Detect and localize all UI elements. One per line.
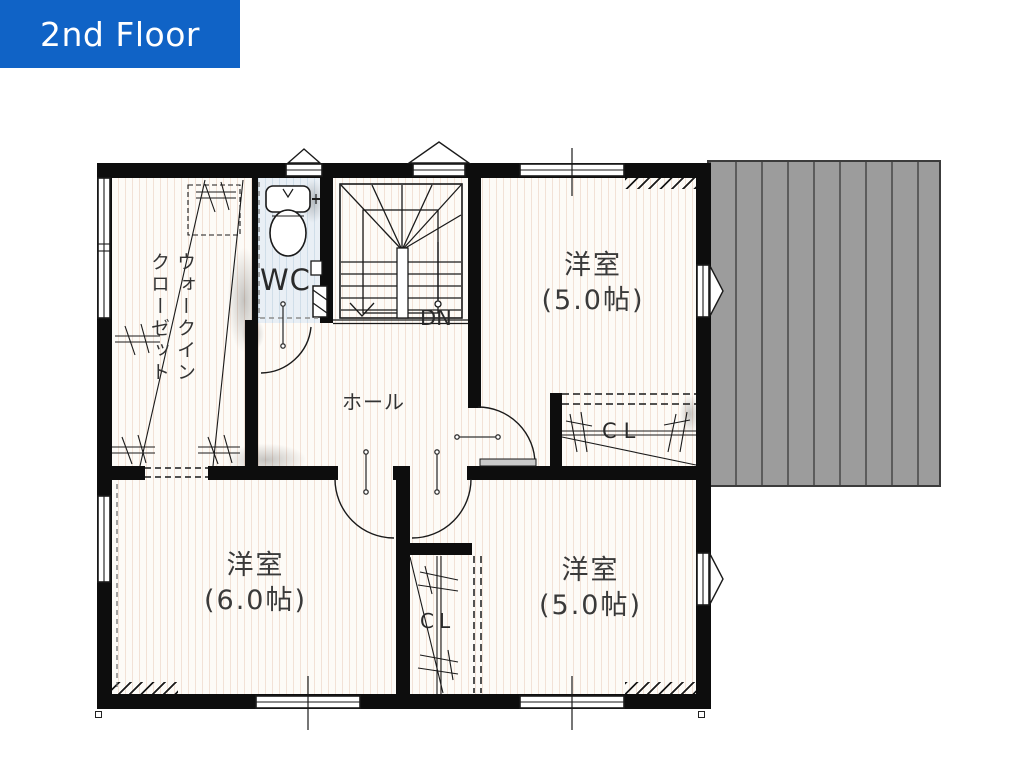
wall-segment xyxy=(245,320,258,480)
corner-marker xyxy=(95,711,102,718)
wall-segment xyxy=(550,393,562,480)
wall-segment xyxy=(97,163,711,178)
wall-segment xyxy=(467,466,711,480)
room-label-bottom-left: 洋室 (6.0帖) xyxy=(163,548,348,618)
room-label-bottom-right: 洋室 (5.0帖) xyxy=(498,553,683,623)
floor-badge-label: 2nd Floor xyxy=(40,15,200,54)
closet-label-bottom: CL xyxy=(420,609,455,633)
balcony-roof xyxy=(707,160,941,487)
eave-hatch xyxy=(625,178,697,189)
eave-hatch xyxy=(107,682,178,694)
floor-badge: 2nd Floor xyxy=(0,0,240,68)
wall-segment xyxy=(252,178,258,323)
wall-segment xyxy=(320,163,333,323)
wall-segment xyxy=(396,478,410,709)
wall-segment xyxy=(410,543,472,555)
hall-label: ホール xyxy=(342,386,405,415)
wall-segment xyxy=(696,163,711,709)
wall-segment xyxy=(97,466,145,480)
room-label-top-right: 洋室 (5.0帖) xyxy=(503,248,683,318)
closet-label-mid-right: CL xyxy=(602,419,642,443)
eave-hatch xyxy=(625,682,697,694)
wall-segment xyxy=(468,163,481,408)
corner-marker xyxy=(698,711,705,718)
wc-label: WC xyxy=(260,263,311,297)
wc-floor xyxy=(258,178,320,323)
wall-segment xyxy=(208,466,245,480)
walk-in-closet-label: ウォークイン クローゼット xyxy=(146,252,198,427)
wall-segment xyxy=(97,163,112,709)
wall-segment xyxy=(258,466,338,480)
stairs-down-label: DN xyxy=(420,306,452,330)
